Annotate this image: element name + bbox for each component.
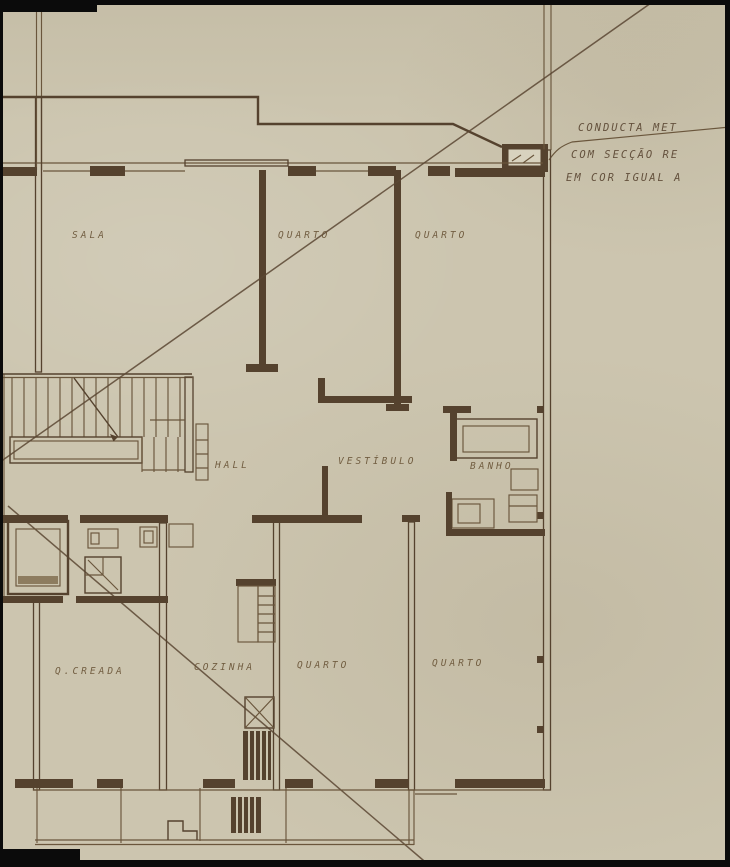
- lower-partition-walls: [34, 521, 415, 790]
- room-label-quarto-top-left: QUARTO: [278, 230, 330, 241]
- room-labels: SALA QUARTO QUARTO HALL VESTÍBULO BANHO …: [55, 230, 514, 677]
- diagonal-construction-lines: [0, 3, 651, 866]
- roof-outline: [3, 5, 502, 170]
- balcony-hatched-block: [231, 797, 261, 833]
- room-label-sala: SALA: [72, 230, 107, 241]
- scanned-floor-plan-page: { "document": { "kind": "hand-drawn arch…: [0, 0, 730, 867]
- upper-partition-walls: [246, 170, 412, 411]
- room-label-hall: HALL: [214, 460, 250, 471]
- service-tub: [88, 529, 118, 548]
- annotation-line-2: COM SECÇÃO RE: [571, 148, 679, 161]
- toilet: [511, 469, 538, 490]
- chimney-hatched-block: [243, 731, 271, 780]
- right-exterior-wall: [537, 150, 551, 790]
- balcony: [35, 788, 414, 845]
- kitchen-counter: [238, 586, 258, 642]
- hall-vestibule-walls: [3, 466, 420, 523]
- room-label-quarto-creada: Q.CREADA: [55, 666, 125, 677]
- room-label-quarto-bottom-left: QUARTO: [297, 660, 349, 671]
- kitchen-shelves: [258, 586, 275, 642]
- annotation-line-3: EM COR IGUAL A: [566, 172, 683, 184]
- service-block: [3, 521, 193, 603]
- room-label-quarto-bottom-right: QUARTO: [432, 658, 484, 669]
- balcony-step-notch: [168, 821, 197, 840]
- top-exterior-wall: [3, 160, 545, 177]
- room-label-quarto-top-right: QUARTO: [415, 230, 467, 241]
- room-label-vestibulo: VESTÍBULO: [338, 455, 416, 467]
- closet: [169, 524, 193, 547]
- stair-side-wall: [185, 377, 193, 472]
- kitchen-fixtures: [236, 579, 276, 780]
- room-label-banho: BANHO: [470, 461, 514, 472]
- room-label-cozinha: COZINHA: [194, 662, 255, 673]
- bidet: [509, 495, 537, 522]
- duct-annotation: CONDUCTA MET COM SECÇÃO RE EM COR IGUAL …: [566, 122, 683, 184]
- water-heater: [140, 527, 157, 547]
- staircase: [3, 374, 208, 480]
- floor-plan-drawing: SALA QUARTO QUARTO HALL VESTÍBULO BANHO …: [0, 0, 730, 867]
- annotation-line-1: CONDUCTA MET: [578, 122, 678, 134]
- ventilation-shaft: [196, 424, 208, 480]
